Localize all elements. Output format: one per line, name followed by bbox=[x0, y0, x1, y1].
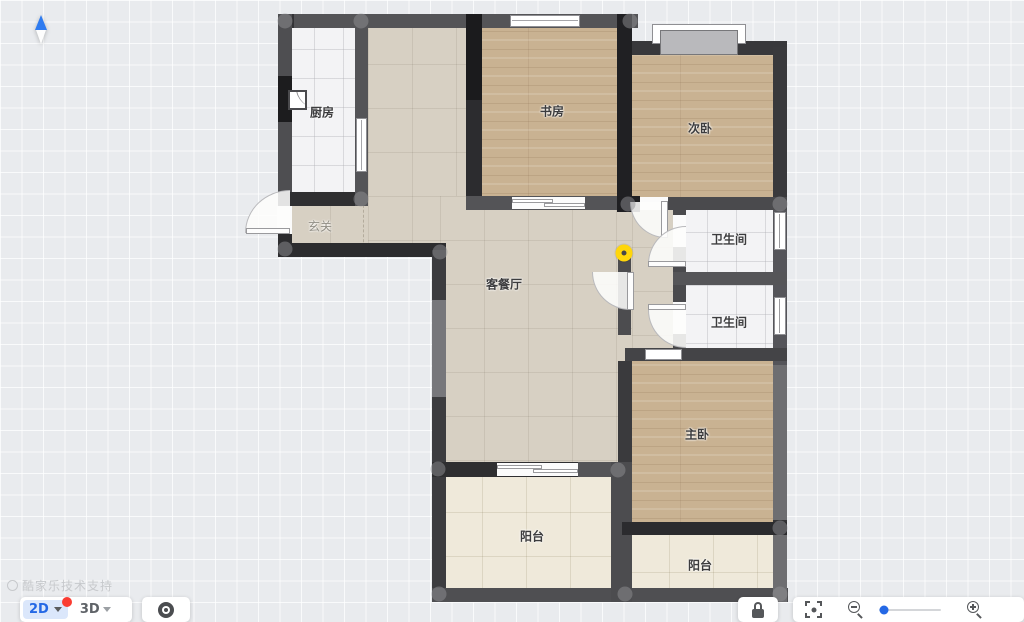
wall-node[interactable] bbox=[431, 462, 446, 477]
kitchen-sink-icon-line bbox=[296, 90, 307, 108]
entry-door-arc bbox=[245, 190, 290, 233]
fit-to-screen-icon bbox=[805, 601, 822, 618]
view-mode-switcher: 2D 3D bbox=[20, 597, 132, 622]
view-2d-button[interactable]: 2D bbox=[23, 600, 68, 619]
room-label-entry: 玄关 bbox=[308, 218, 332, 235]
wall-left-lower-gray-seg[interactable] bbox=[432, 300, 446, 397]
wall-node[interactable] bbox=[433, 245, 448, 260]
wall-node[interactable] bbox=[773, 197, 788, 212]
visibility-button[interactable] bbox=[142, 597, 190, 622]
bath1-window-line bbox=[779, 214, 780, 248]
north-compass bbox=[35, 15, 47, 44]
wall-right-lower[interactable] bbox=[773, 365, 787, 602]
eye-icon bbox=[158, 602, 174, 618]
view-2d-label: 2D bbox=[29, 602, 49, 617]
room-label-kitchen: 厨房 bbox=[310, 104, 334, 121]
room-label-bath2: 卫生间 bbox=[711, 314, 747, 331]
north-compass-blue-needle bbox=[35, 15, 47, 30]
master-door-leaf[interactable] bbox=[627, 272, 634, 310]
kitchen-sliding-door-line bbox=[361, 120, 362, 170]
wall-node[interactable] bbox=[354, 192, 369, 207]
fit-to-screen-button[interactable] bbox=[805, 601, 822, 618]
bath2-door-leaf[interactable] bbox=[648, 304, 686, 310]
wall-node[interactable] bbox=[773, 521, 788, 536]
bath1-window[interactable] bbox=[774, 212, 786, 250]
zoom-slider[interactable] bbox=[879, 609, 941, 611]
watermark-text: 酷家乐技术支持 bbox=[22, 577, 113, 594]
room-label-master: 主卧 bbox=[685, 426, 709, 443]
zoom-out-button[interactable] bbox=[848, 601, 865, 618]
study-sliding-door-panel-2 bbox=[544, 203, 585, 207]
bath1-door-leaf[interactable] bbox=[648, 261, 686, 267]
bedroom2-bay-window-slab bbox=[660, 30, 738, 55]
wall-top[interactable] bbox=[278, 14, 638, 28]
wall-node[interactable] bbox=[278, 242, 293, 257]
room-label-bath1: 卫生间 bbox=[711, 231, 747, 248]
selected-point-marker[interactable] bbox=[616, 245, 633, 262]
wall-bath-divider[interactable] bbox=[673, 272, 787, 285]
view-3d-label: 3D bbox=[80, 602, 100, 617]
wall-node[interactable] bbox=[618, 587, 633, 602]
kitchen-sink-icon[interactable] bbox=[288, 90, 307, 110]
notification-dot bbox=[62, 597, 72, 607]
balcony-sliding-door-panel-2 bbox=[533, 469, 578, 473]
wall-kitchen-right[interactable] bbox=[355, 28, 368, 206]
wall-node[interactable] bbox=[432, 587, 447, 602]
study-top-window[interactable] bbox=[510, 15, 580, 27]
study-top-window-line bbox=[512, 20, 578, 21]
room-label-bedroom2: 次卧 bbox=[688, 120, 712, 137]
watermark-logo-icon bbox=[7, 580, 18, 591]
wall-node[interactable] bbox=[611, 463, 626, 478]
room-label-balcony-left: 阳台 bbox=[520, 528, 544, 545]
wall-right-upper[interactable] bbox=[773, 47, 787, 205]
room-label-living: 客餐厅 bbox=[486, 276, 522, 293]
wall-node[interactable] bbox=[621, 197, 636, 212]
zoom-slider-knob[interactable] bbox=[880, 605, 889, 614]
room-label-study: 书房 bbox=[540, 103, 564, 120]
wall-node[interactable] bbox=[278, 14, 293, 29]
wall-entry-bottom[interactable] bbox=[278, 243, 446, 257]
wall-study-right[interactable] bbox=[617, 14, 632, 206]
zoom-toolbar bbox=[793, 597, 1024, 622]
entry-door-leaf[interactable] bbox=[246, 228, 290, 234]
bath2-window[interactable] bbox=[774, 297, 786, 335]
room-label-balcony-right: 阳台 bbox=[688, 557, 712, 574]
watermark: 酷家乐技术支持 bbox=[7, 577, 113, 594]
wall-bottom[interactable] bbox=[432, 588, 788, 602]
chevron-down-icon bbox=[54, 607, 62, 612]
master-top-opening[interactable] bbox=[645, 349, 682, 360]
selected-point-marker-center bbox=[622, 251, 627, 256]
wall-balcony-right-top[interactable] bbox=[622, 522, 787, 535]
wall-node[interactable] bbox=[354, 14, 369, 29]
zoom-in-button[interactable] bbox=[967, 601, 984, 618]
lock-button[interactable] bbox=[738, 597, 778, 622]
chevron-down-icon bbox=[103, 607, 111, 612]
wall-study-left-black-seg[interactable] bbox=[466, 14, 482, 100]
lock-icon-body bbox=[752, 609, 764, 618]
view-3d-button[interactable]: 3D bbox=[80, 602, 111, 617]
bath2-window-line bbox=[779, 299, 780, 333]
zoom-out-icon bbox=[848, 601, 865, 618]
room-living-floor[interactable] bbox=[440, 196, 632, 477]
zoom-in-icon bbox=[967, 601, 984, 618]
floorplan-canvas[interactable]: 厨房 书房 次卧 玄关 客餐厅 卫生间 卫生间 主卧 阳台 阳台 酷家乐技术支持… bbox=[0, 0, 1024, 622]
wall-node[interactable] bbox=[623, 14, 638, 29]
north-compass-white-needle bbox=[36, 30, 46, 44]
